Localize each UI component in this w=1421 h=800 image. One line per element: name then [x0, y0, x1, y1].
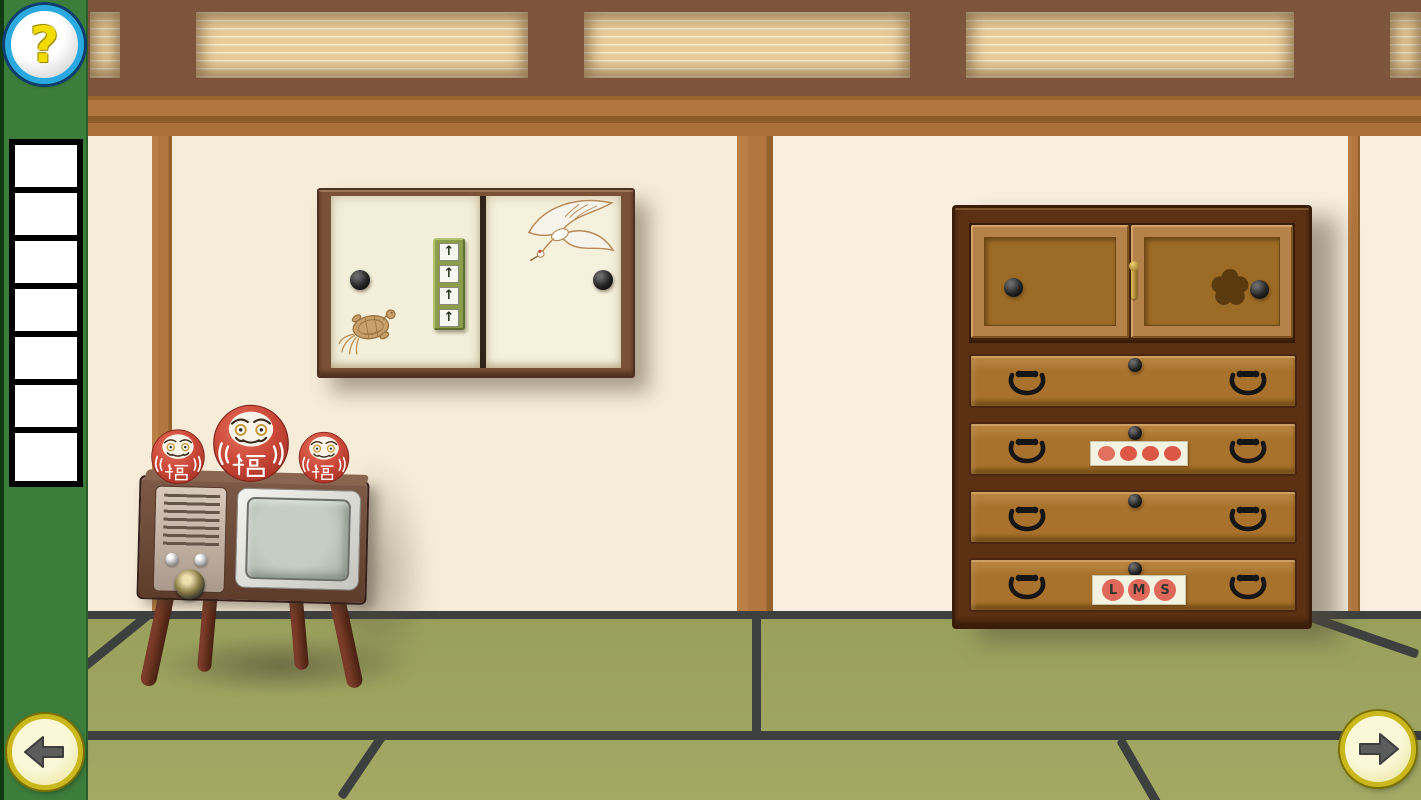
inventory-slot[interactable] — [15, 337, 77, 385]
cabinet-right-door[interactable] — [486, 196, 621, 368]
inventory-slot[interactable] — [15, 241, 77, 289]
arrow-up-button[interactable]: ↑ — [439, 309, 459, 327]
size-button-S[interactable]: S — [1154, 579, 1176, 601]
daruma-doll-small[interactable] — [297, 428, 351, 484]
arrow-right-icon — [1354, 725, 1402, 773]
transom-panel — [584, 12, 910, 78]
inventory-slot[interactable] — [15, 145, 77, 193]
cabinet-left-door-handle[interactable] — [350, 270, 370, 290]
tv[interactable] — [136, 475, 369, 605]
navigate-left-button[interactable] — [7, 714, 83, 790]
chest-of-drawers[interactable]: L M S — [952, 205, 1312, 629]
wall-post — [737, 136, 773, 612]
transom-panel — [90, 12, 120, 78]
arrow-up-button[interactable]: ↑ — [439, 287, 459, 305]
arrow-up-button[interactable]: ↑ — [439, 243, 459, 261]
dot-code-panel — [1090, 441, 1188, 466]
inventory-slot[interactable] — [15, 385, 77, 433]
latch-ball — [1129, 261, 1139, 271]
chest-top-section — [969, 223, 1295, 343]
drawer-knob[interactable] — [1128, 358, 1142, 372]
code-dot[interactable] — [1120, 446, 1137, 461]
chest-right-door[interactable] — [1131, 225, 1293, 338]
inventory-slot[interactable] — [15, 289, 77, 337]
drawer-ring-handle-icon[interactable] — [1004, 505, 1050, 533]
navigate-right-button[interactable] — [1340, 711, 1416, 787]
tv-tuning-knob[interactable] — [174, 569, 205, 600]
chest-left-door-panel — [984, 237, 1116, 326]
size-button-M[interactable]: M — [1128, 579, 1150, 601]
game-stage: ↑ ↑ ↑ ↑ — [0, 0, 1421, 800]
daruma-doll-large[interactable] — [211, 399, 291, 483]
chest-drawer-1[interactable] — [969, 354, 1297, 408]
daruma-doll-small[interactable] — [150, 425, 206, 485]
drawer-knob[interactable] — [1128, 494, 1142, 508]
inventory-slot[interactable] — [15, 433, 77, 481]
help-button[interactable]: ? — [5, 5, 84, 84]
tv-screen[interactable] — [245, 497, 351, 582]
chest-right-door-handle[interactable] — [1250, 280, 1269, 299]
chest-drawer-4[interactable]: L M S — [969, 558, 1297, 612]
drawer-ring-handle-icon[interactable] — [1004, 437, 1050, 465]
tv-shadow — [150, 635, 410, 695]
wall-panel — [1360, 136, 1421, 612]
crane-motif-icon — [522, 194, 620, 268]
drawer-knob[interactable] — [1128, 426, 1142, 440]
tv-group — [130, 400, 390, 700]
drawer-ring-handle-icon[interactable] — [1225, 369, 1271, 397]
chest-left-door[interactable] — [971, 225, 1129, 338]
tatami-seam — [752, 619, 761, 733]
cabinet-right-door-handle[interactable] — [593, 270, 613, 290]
wall-beam — [0, 96, 1421, 136]
arrow-code-panel: ↑ ↑ ↑ ↑ — [433, 238, 465, 330]
plum-blossom-cutout-icon[interactable] — [1211, 269, 1249, 307]
drawer-ring-handle-icon[interactable] — [1004, 573, 1050, 601]
tv-screen-bezel — [235, 488, 362, 591]
drawer-ring-handle-icon[interactable] — [1225, 437, 1271, 465]
inventory-slots — [9, 139, 83, 487]
inventory-sidebar: ? — [0, 0, 88, 800]
arrow-up-button[interactable]: ↑ — [439, 265, 459, 283]
tv-small-knob[interactable] — [194, 553, 207, 566]
tv-small-knob[interactable] — [165, 553, 178, 566]
code-dot[interactable] — [1164, 446, 1181, 461]
tatami-seam — [0, 731, 1421, 740]
chest-drawer-3[interactable] — [969, 490, 1297, 544]
size-letter-panel: L M S — [1092, 575, 1186, 605]
chest-left-door-handle[interactable] — [1004, 278, 1023, 297]
transom-panel — [966, 12, 1294, 78]
drawer-ring-handle-icon[interactable] — [1225, 505, 1271, 533]
drawer-knob[interactable] — [1128, 562, 1142, 576]
brass-latch-pin[interactable] — [1131, 267, 1137, 299]
wall-cabinet[interactable]: ↑ ↑ ↑ ↑ — [317, 188, 635, 378]
question-mark-icon: ? — [30, 20, 59, 70]
size-button-L[interactable]: L — [1102, 579, 1124, 601]
wall-post — [1348, 136, 1360, 612]
wall-cabinet-track: ↑ ↑ ↑ ↑ — [331, 196, 621, 368]
tv-control-panel — [153, 485, 228, 593]
cabinet-left-door[interactable]: ↑ ↑ ↑ ↑ — [331, 196, 480, 368]
transom-panel — [1390, 12, 1421, 78]
turtle-motif-icon — [337, 304, 403, 356]
code-dot[interactable] — [1142, 446, 1159, 461]
tv-speaker-grille — [163, 494, 220, 550]
transom-panel — [196, 12, 528, 78]
arrow-left-icon — [21, 728, 69, 776]
drawer-ring-handle-icon[interactable] — [1004, 369, 1050, 397]
code-dot[interactable] — [1098, 446, 1115, 461]
drawer-ring-handle-icon[interactable] — [1225, 573, 1271, 601]
chest-drawer-2[interactable] — [969, 422, 1297, 476]
inventory-slot[interactable] — [15, 193, 77, 241]
